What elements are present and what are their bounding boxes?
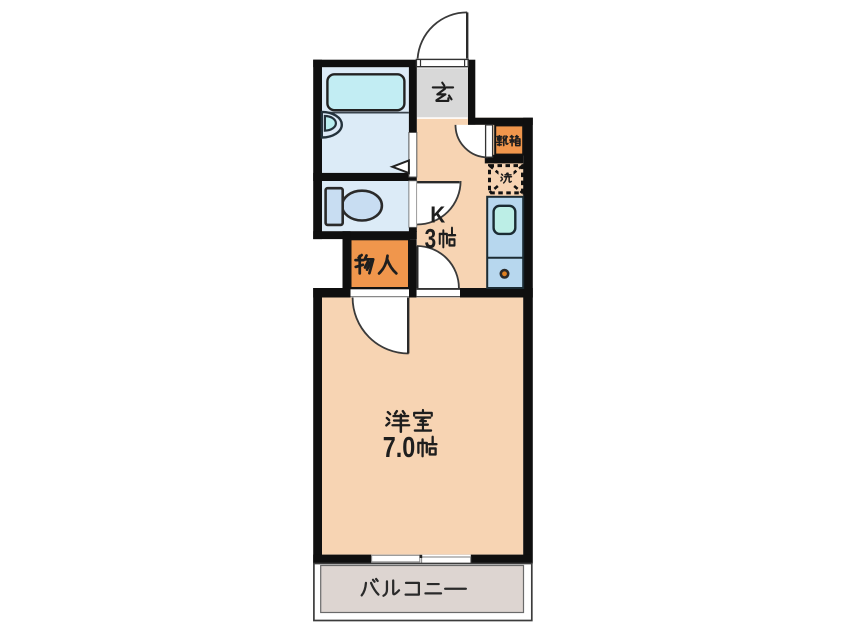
svg-text:7.0: 7.0 bbox=[383, 432, 416, 464]
svg-text:3: 3 bbox=[425, 223, 437, 254]
